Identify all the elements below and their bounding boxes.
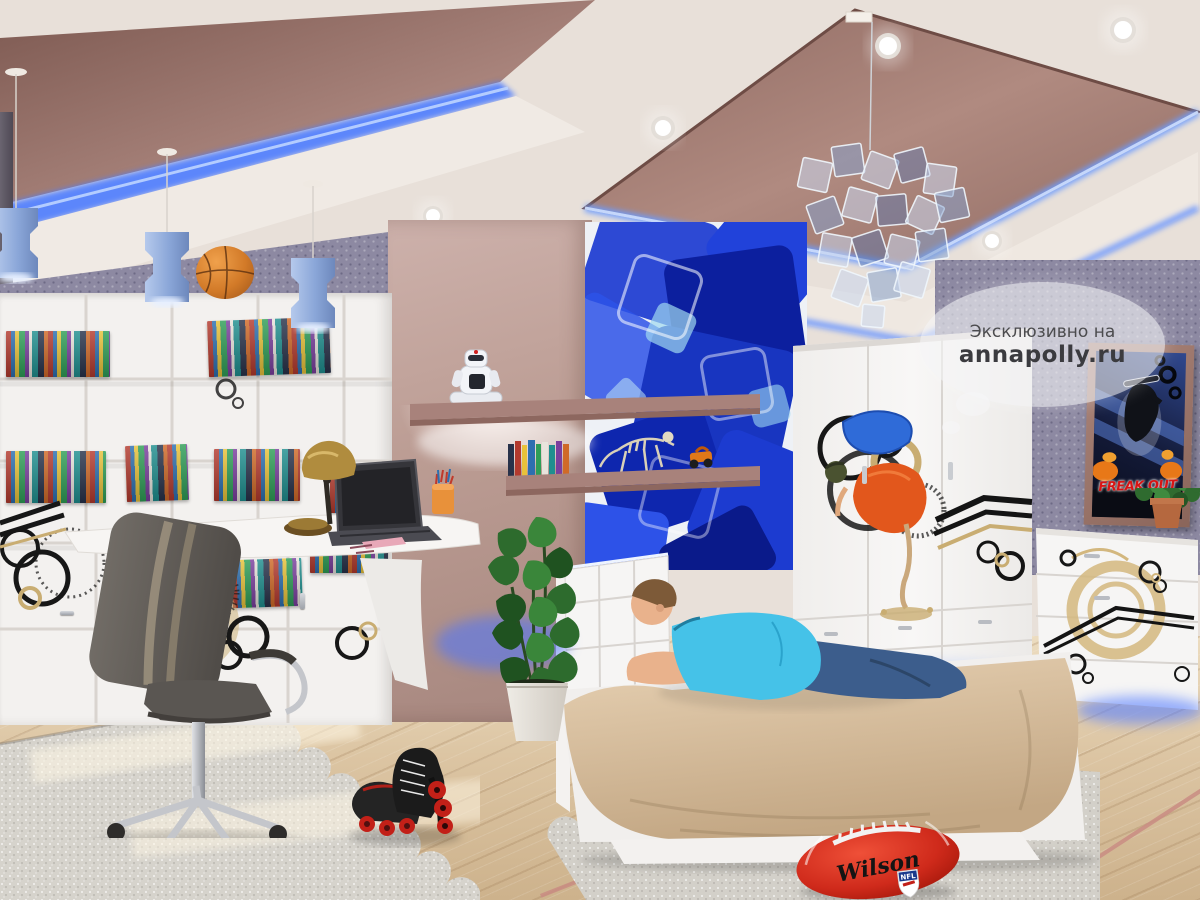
decal-jacket (843, 411, 912, 453)
wardrobe-handle (862, 466, 867, 484)
watermark-bubble-dot (956, 392, 990, 416)
boy-shirt (672, 613, 821, 700)
chair-back (85, 508, 245, 700)
watermark-bubble-dot (942, 421, 960, 434)
watermark-text: Эксклюзивно на (970, 322, 1116, 342)
watermark-bubble: Эксклюзивно на annapolly.ru (920, 282, 1165, 407)
desk-pedestal (360, 558, 428, 690)
chair-base (116, 786, 278, 838)
pendant-lamp (145, 148, 189, 307)
bedroom-render: FREAK OUT (0, 0, 1200, 900)
monstera-plant (484, 515, 586, 741)
dresser-plant (1135, 488, 1200, 528)
toy-bike (690, 448, 713, 469)
robot-toy (450, 350, 502, 404)
pendant-lamp (291, 180, 335, 333)
plant-pot (506, 683, 568, 741)
pendant-lamp (0, 68, 38, 283)
boy (627, 579, 967, 700)
watermark-site: annapolly.ru (959, 342, 1126, 368)
dinosaur-skeleton-toy (600, 432, 674, 474)
shelf-books (508, 440, 569, 478)
wardrobe-handle (948, 462, 953, 480)
chandelier (780, 0, 980, 335)
